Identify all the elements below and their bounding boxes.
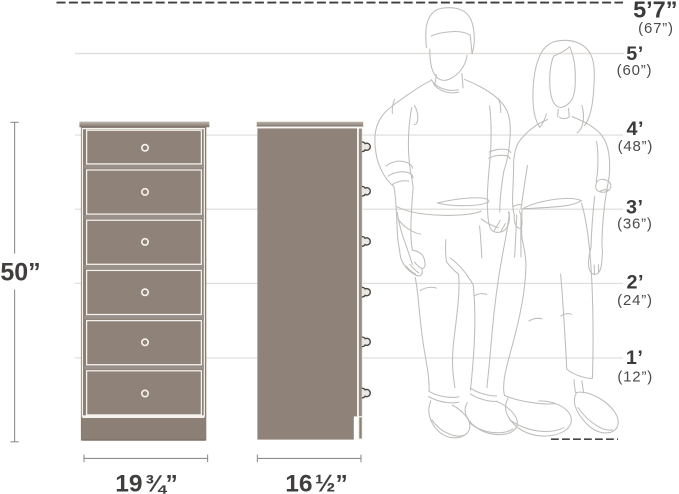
svg-text:(12”): (12”) bbox=[617, 368, 653, 385]
svg-text:(67”): (67”) bbox=[638, 20, 674, 37]
svg-text:4’: 4’ bbox=[626, 118, 644, 140]
svg-text:2’: 2’ bbox=[626, 272, 644, 294]
svg-text:(24”): (24”) bbox=[617, 292, 653, 309]
svg-text:16½”: 16½” bbox=[285, 471, 347, 494]
svg-text:(60”): (60”) bbox=[617, 62, 653, 79]
svg-text:(48”): (48”) bbox=[618, 138, 654, 155]
svg-text:50”: 50” bbox=[0, 258, 40, 286]
svg-text:(36”): (36”) bbox=[617, 216, 653, 233]
svg-text:1’: 1’ bbox=[626, 347, 644, 369]
svg-text:19¾”: 19¾” bbox=[115, 471, 177, 494]
